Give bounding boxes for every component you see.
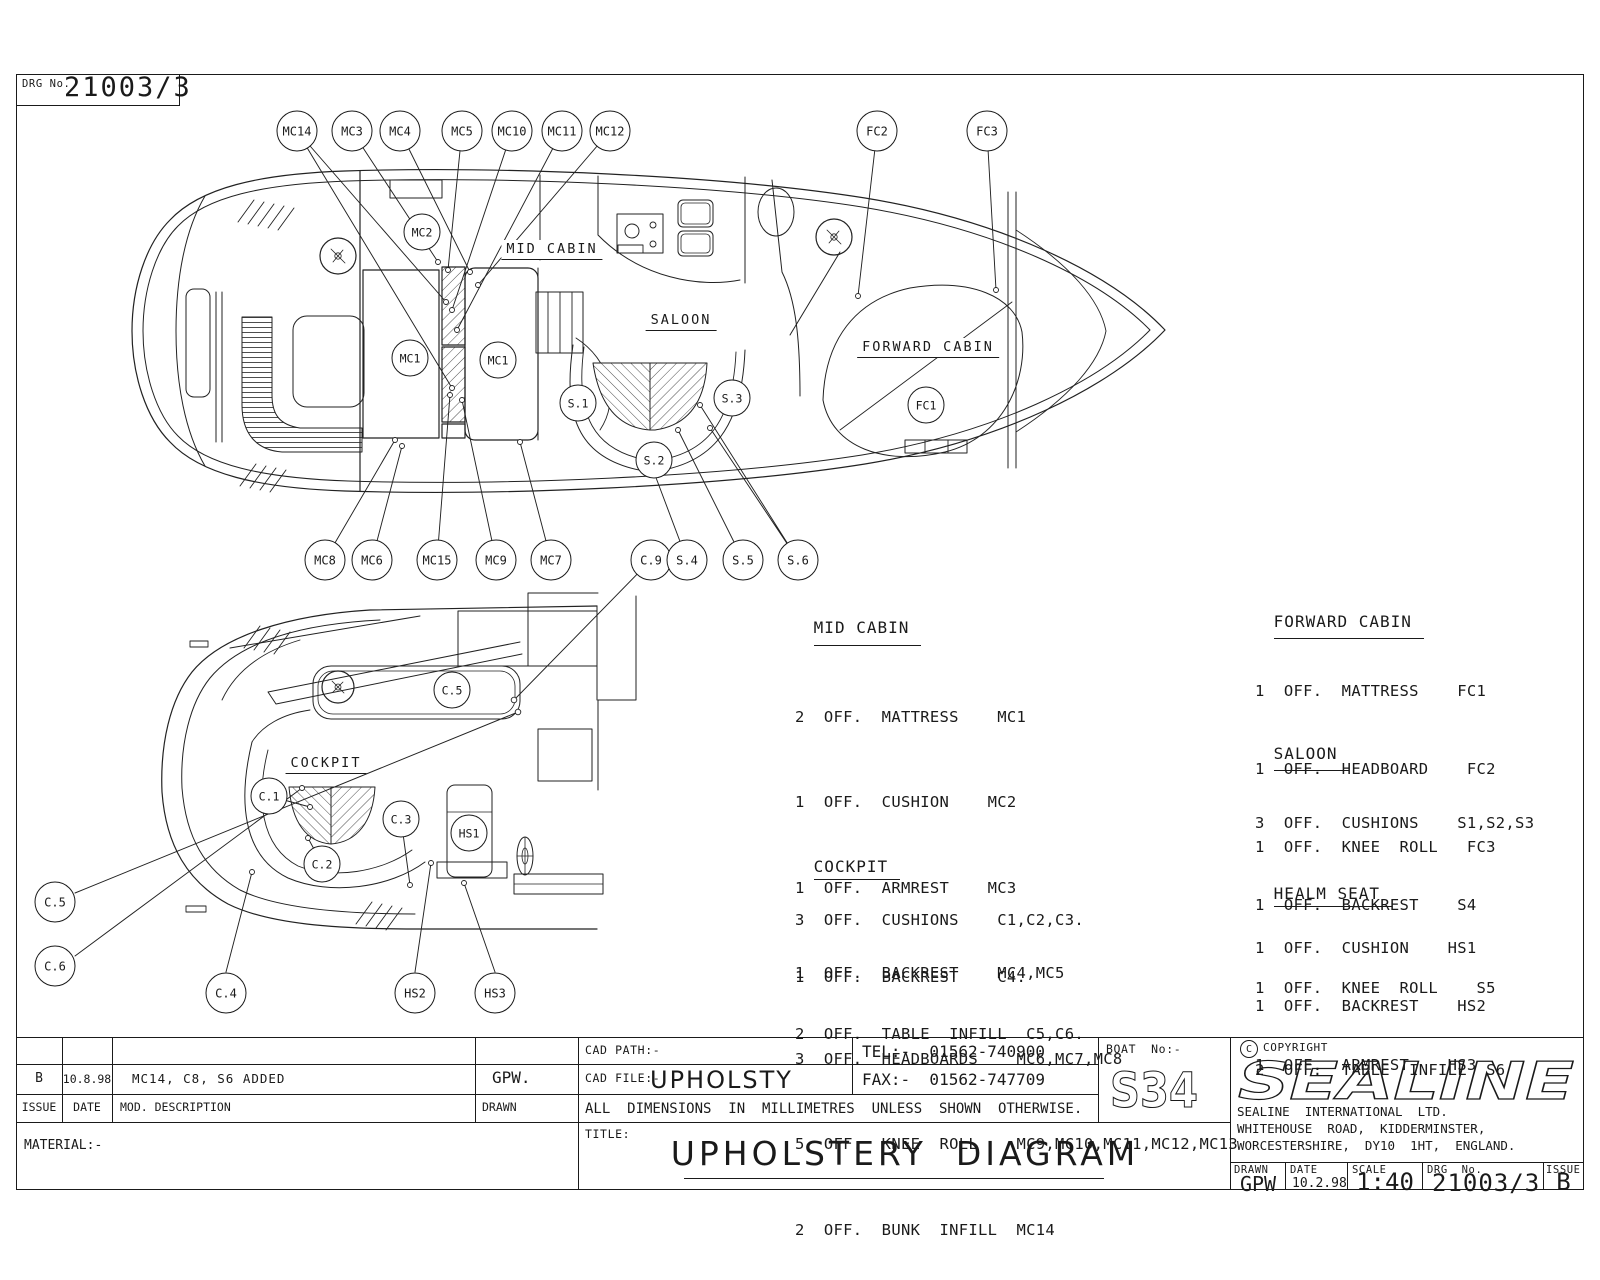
copyright-label: COPYRIGHT <box>1263 1041 1328 1054</box>
company-line3: WORCESTERSHIRE, DY10 1HT, ENGLAND. <box>1237 1138 1515 1153</box>
parts-list-item: 1 OFF. BACKREST C4. <box>795 968 1084 987</box>
callout-fc3: FC3 <box>967 111 1008 152</box>
callout-c6: C.6 <box>35 946 76 987</box>
revision-header-drawn: DRAWN <box>482 1100 517 1114</box>
company-line2: WHITEHOUSE ROAD, KIDDERMINSTER, <box>1237 1121 1485 1136</box>
callout-s1: S.1 <box>560 385 597 422</box>
area-label-mid-cabin: MID CABIN <box>501 240 602 260</box>
area-label-cockpit: COCKPIT <box>286 754 367 774</box>
callout-fc1: FC1 <box>908 387 945 424</box>
parts-list-item: 3 OFF. CUSHIONS C1,C2,C3. <box>795 911 1084 930</box>
callout-mc14: MC14 <box>277 111 318 152</box>
callout-hs3: HS3 <box>475 973 516 1014</box>
callout-c1: C.1 <box>251 778 288 815</box>
callout-mc4: MC4 <box>380 111 421 152</box>
parts-list-item: 1 OFF. MATTRESS FC1 <box>1255 678 1496 704</box>
area-label-saloon: SALOON <box>646 311 717 331</box>
callout-c4: C.4 <box>206 973 247 1014</box>
parts-list-healm-seat: HEALM SEAT 1 OFF. CUSHION HS1 1 OFF. BAC… <box>1255 864 1486 1095</box>
parts-list-item: 1 OFF. BACKREST HS2 <box>1255 997 1486 1017</box>
parts-list-title: SALOON <box>1274 740 1350 772</box>
callout-s2: S.2 <box>636 442 673 479</box>
callout-mc3: MC3 <box>332 111 373 152</box>
cad-file-label: CAD FILE:- <box>585 1071 660 1085</box>
tel-value: TEL:- 01562-740900 <box>862 1042 1045 1061</box>
revision-description: MC14, C8, S6 ADDED <box>132 1071 285 1086</box>
parts-list-item: 2 OFF. BUNK INFILL MC14 <box>795 1216 1238 1245</box>
drawn-value: GPW <box>1232 1172 1284 1196</box>
scale-value: 1:40 <box>1349 1168 1421 1196</box>
callout-mc9: MC9 <box>476 540 517 581</box>
copyright-icon: C <box>1240 1040 1258 1058</box>
fax-value: FAX:- 01562-747709 <box>862 1070 1045 1089</box>
drg-no-box-value: 21003/3 <box>64 72 192 103</box>
drawing-title: UPHOLSTERY DIAGRAM <box>620 1134 1190 1173</box>
revision-drawn: GPW. <box>492 1068 531 1087</box>
callout-c3: C.3 <box>383 801 420 838</box>
boat-no-label: BOAT No:- <box>1106 1042 1181 1056</box>
dimensions-note: ALL DIMENSIONS IN MILLIMETRES UNLESS SHO… <box>585 1101 1082 1117</box>
date-label: DATE <box>1290 1164 1318 1176</box>
parts-list-item: 3 OFF. CUSHIONS S1,S2,S3 <box>1255 810 1534 838</box>
callout-c5-external: C.5 <box>35 882 76 923</box>
parts-list-cockpit: COCKPIT 3 OFF. CUSHIONS C1,C2,C3. 1 OFF.… <box>795 838 1084 1063</box>
parts-list-item: 1 OFF. CUSHION MC2 <box>795 788 1238 817</box>
parts-list-item: 1 OFF. CUSHION HS1 <box>1255 939 1486 959</box>
cad-path-label: CAD PATH:- <box>585 1043 660 1057</box>
callout-mc11: MC11 <box>542 111 583 152</box>
copyright-symbol: C <box>1246 1044 1252 1055</box>
callout-mc8: MC8 <box>305 540 346 581</box>
issue-value: B <box>1543 1168 1584 1196</box>
callout-mc7: MC7 <box>531 540 572 581</box>
callout-hs2: HS2 <box>395 973 436 1014</box>
cad-file-value: UPHOLSTY <box>650 1066 793 1094</box>
callout-s3: S.3 <box>714 380 751 417</box>
callout-c5-bench: C.5 <box>434 672 471 709</box>
upholstery-drawing-sheet: { "drg_box": { "label": "DRG No.", "valu… <box>0 0 1600 1280</box>
callout-mc2: MC2 <box>404 214 441 251</box>
revision-header-description: MOD. DESCRIPTION <box>120 1100 231 1114</box>
parts-list-item: 1 OFF. ARMREST HS3 <box>1255 1056 1486 1076</box>
callout-s5: S.5 <box>723 540 764 581</box>
area-label-forward-cabin: FORWARD CABIN <box>857 338 999 358</box>
callout-mc10: MC10 <box>492 111 533 152</box>
callout-mc12: MC12 <box>590 111 631 152</box>
callout-mc15: MC15 <box>417 540 458 581</box>
company-line1: SEALINE INTERNATIONAL LTD. <box>1237 1104 1448 1119</box>
parts-list-title: FORWARD CABIN <box>1274 609 1424 639</box>
revision-issue: B <box>16 1071 62 1086</box>
parts-list-title: HEALM SEAT <box>1274 884 1392 908</box>
callout-mc1-right: MC1 <box>480 342 517 379</box>
parts-list-title: COCKPIT <box>814 857 900 880</box>
callout-mc6: MC6 <box>352 540 393 581</box>
callout-fc2: FC2 <box>857 111 898 152</box>
revision-header-issue: ISSUE <box>16 1100 62 1114</box>
parts-list-title: MID CABIN <box>814 614 922 647</box>
callout-s4: S.4 <box>667 540 708 581</box>
revision-date: 10.8.98 <box>62 1072 112 1086</box>
material-label: MATERIAL:- <box>24 1138 102 1153</box>
callout-hs1: HS1 <box>451 815 488 852</box>
drg-no-value: 21003/3 <box>1432 1169 1540 1197</box>
cockpit-linework <box>162 593 636 930</box>
callout-s6: S.6 <box>778 540 819 581</box>
revision-header-date: DATE <box>62 1100 112 1114</box>
callout-mc1-left: MC1 <box>392 340 429 377</box>
parts-list-item: 2 OFF. MATTRESS MC1 <box>795 703 1238 732</box>
date-value: 10.2.98 <box>1292 1176 1347 1191</box>
callout-c9: C.9 <box>631 540 672 581</box>
callout-c2: C.2 <box>304 846 341 883</box>
callout-mc5: MC5 <box>442 111 483 152</box>
